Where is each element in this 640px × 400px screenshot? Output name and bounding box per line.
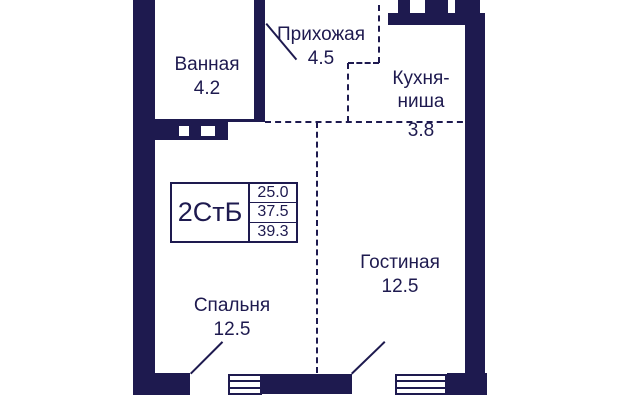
balcony-door-swing-living (351, 341, 385, 374)
bathroom-right-wall (254, 0, 265, 122)
apartment-info-box: 2СтБ 25.0 37.5 39.3 (170, 182, 298, 243)
room-area: 12.5 (360, 275, 440, 298)
room-name: Гостиная (360, 252, 440, 273)
shaft-hatch-2 (201, 126, 215, 136)
room-name: Кухня- ниша (392, 68, 449, 112)
room-area: 12.5 (194, 318, 270, 341)
bottom-right-wall-corner (447, 373, 487, 395)
window-bedroom (228, 374, 262, 395)
room-area: 3.8 (392, 119, 449, 142)
room-label-bathroom: Ванная 4.2 (174, 30, 239, 123)
left-exterior-wall (133, 0, 155, 395)
area-total-value: 37.5 (250, 203, 296, 222)
room-name: Ванная (174, 54, 239, 75)
room-label-bedroom: Спальня 12.5 (194, 271, 270, 364)
area-total-balcony-value: 39.3 (250, 223, 296, 241)
room-label-kitchen: Кухня- ниша 3.8 (392, 44, 449, 165)
room-name: Прихожая (277, 24, 365, 45)
shaft-hatch-1 (179, 126, 189, 136)
top-wall-stub-3 (455, 0, 480, 14)
apartment-areas: 25.0 37.5 39.3 (250, 184, 296, 241)
apartment-type-label: 2СтБ (172, 184, 250, 241)
area-living-value: 25.0 (250, 184, 296, 203)
window-pane (230, 389, 260, 393)
kitchen-niche-dashed-v1 (378, 5, 380, 63)
room-label-hallway: Прихожая 4.5 (277, 0, 365, 93)
room-label-living: Гостиная 12.5 (360, 228, 440, 321)
bottom-wall-middle (262, 374, 352, 394)
top-wall-stub-1 (398, 0, 410, 14)
floor-plan: Ванная 4.2 Прихожая 4.5 Кухня- ниша 3.8 … (0, 0, 640, 400)
room-name: Спальня (194, 295, 270, 316)
room-area: 4.5 (277, 47, 365, 70)
top-wall-stub-2 (425, 0, 448, 14)
right-exterior-wall (465, 13, 485, 395)
room-area: 4.2 (174, 77, 239, 100)
bedroom-living-divider-dashed (316, 122, 318, 373)
window-living (395, 374, 447, 395)
bathroom-shaft-wall (153, 122, 228, 140)
bottom-left-wall-corner (133, 373, 190, 395)
window-pane (397, 389, 445, 393)
